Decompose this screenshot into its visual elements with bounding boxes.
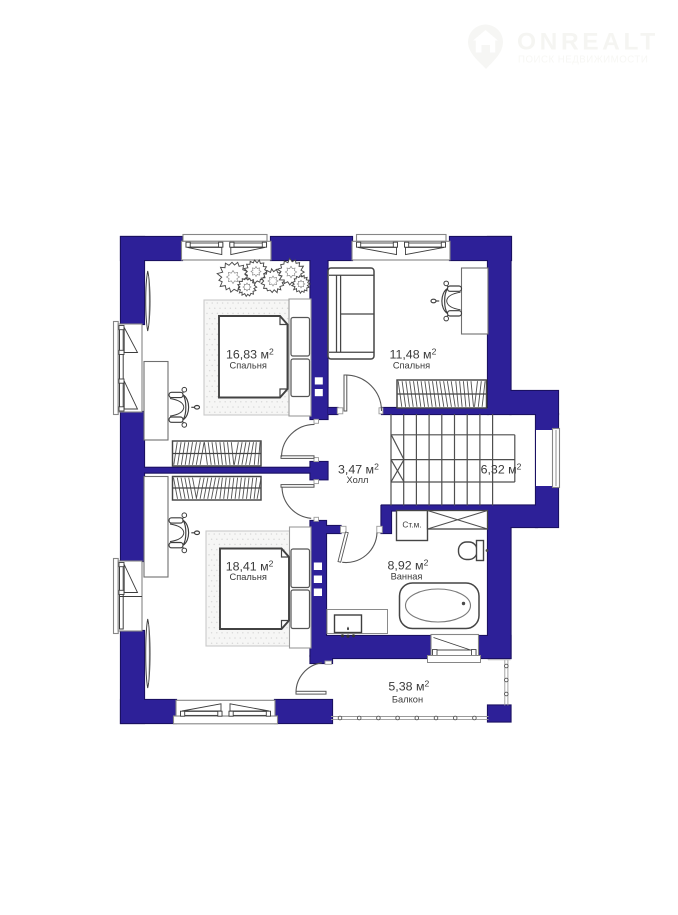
svg-text:5,38 м2: 5,38 м2 [388,679,429,694]
svg-text:Спальня: Спальня [393,360,430,370]
svg-text:8,92 м2: 8,92 м2 [388,558,429,573]
svg-text:ПОИСК НЕДВИЖИМОСТИ: ПОИСК НЕДВИЖИМОСТИ [518,55,648,66]
svg-text:Ст.м.: Ст.м. [402,520,421,530]
svg-text:ONREALT: ONREALT [517,29,659,56]
svg-text:Холл: Холл [347,475,369,485]
svg-text:Ванная: Ванная [391,571,423,581]
svg-text:Спальня: Спальня [230,572,267,582]
svg-text:Балкон: Балкон [392,694,423,704]
svg-text:Спальня: Спальня [230,360,267,370]
svg-text:6,32 м2: 6,32 м2 [481,462,522,477]
